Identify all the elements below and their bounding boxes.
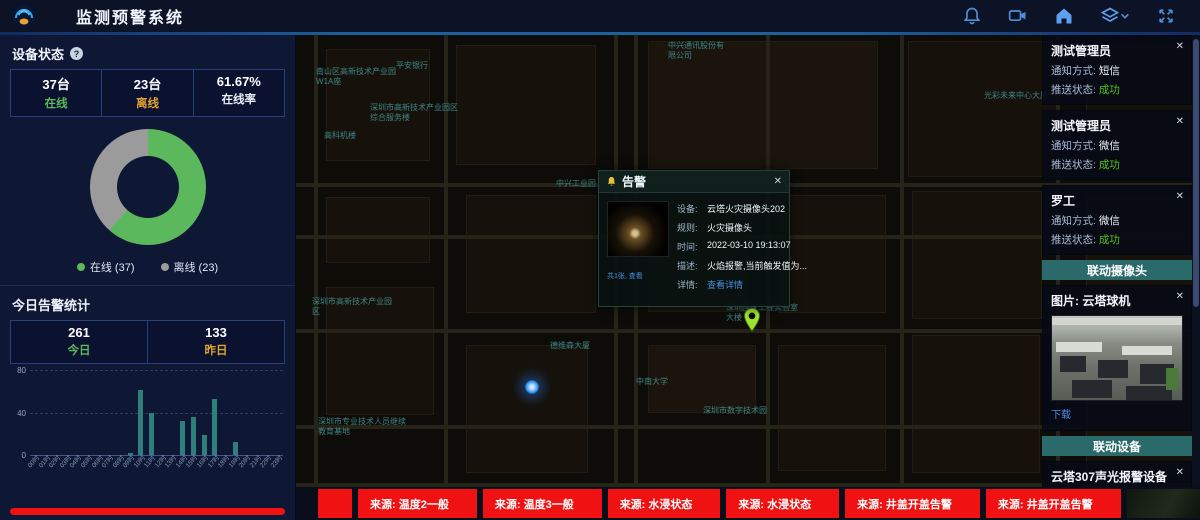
app-header: 监测预警系统 xyxy=(0,0,1200,32)
stat-cell: 37台在线 xyxy=(11,70,101,116)
card-title: 罗工 xyxy=(1051,192,1183,209)
alarm-source-chip[interactable] xyxy=(318,489,352,518)
donut-hole xyxy=(117,156,179,218)
x-axis-tick: 23时 xyxy=(273,459,284,485)
popup-row-value: 2022-03-10 19:13:07 xyxy=(707,240,791,253)
map-place-label: 深圳市高新技术产业园区综合服务楼 xyxy=(370,103,462,123)
alarm-bell-icon xyxy=(606,176,617,187)
bar-slot xyxy=(230,370,241,455)
bar xyxy=(212,399,217,455)
popup-row-label: 规则: xyxy=(677,221,707,234)
notification-card: 测试管理员✕通知方式: 微信推送状态: 成功 xyxy=(1042,110,1192,180)
today-alarm-stats: 261今日133昨日 xyxy=(10,320,285,364)
info-icon[interactable]: ? xyxy=(70,47,83,60)
chevron-down-icon xyxy=(1120,11,1130,21)
device-status-donut-chart xyxy=(90,129,206,245)
right-sidebar: 测试管理员✕通知方式: 短信推送状态: 成功测试管理员✕通知方式: 微信推送状态… xyxy=(1042,35,1192,520)
bar-slot xyxy=(146,370,157,455)
map-place-label: 深圳市数字技术园 xyxy=(703,406,793,416)
notification-card: 测试管理员✕通知方式: 短信推送状态: 成功 xyxy=(1042,35,1192,105)
bar xyxy=(149,413,154,456)
stat-label: 今日 xyxy=(11,342,147,358)
legend-item: 在线 (37) xyxy=(77,259,135,275)
stat-value: 23台 xyxy=(102,74,192,93)
camera-snapshot-image[interactable] xyxy=(1051,315,1183,401)
card-title: 云塔307声光报警设备 xyxy=(1051,468,1183,485)
photo-count-view-link[interactable]: 共1张, 查看 xyxy=(607,271,669,281)
camera-thumbnail-dark[interactable] xyxy=(1127,489,1200,518)
stat-label: 在线 xyxy=(11,95,101,111)
bar-slot xyxy=(209,370,220,455)
unhandled-progress-bar xyxy=(10,508,285,515)
alarm-source-chip[interactable]: 来源: 温度2一般 xyxy=(358,489,477,518)
popup-row: 描述:火焰报警,当前触发值为... xyxy=(677,259,807,272)
stat-value: 37台 xyxy=(11,74,101,93)
linked-devices-header[interactable]: 联动设备 xyxy=(1042,436,1192,456)
bar-slot xyxy=(262,370,273,455)
device-status-title: 设备状态 ? xyxy=(0,35,295,69)
bar xyxy=(180,421,185,455)
video-camera-icon[interactable] xyxy=(1008,6,1028,26)
map-place-label: 德维森大厦 xyxy=(550,341,610,351)
bar-slot xyxy=(199,370,210,455)
bell-icon[interactable] xyxy=(962,6,982,26)
popup-row-label: 详情: xyxy=(677,278,707,291)
card-title: 测试管理员 xyxy=(1051,42,1183,59)
bar-slot xyxy=(135,370,146,455)
stat-cell: 61.67%在线率 xyxy=(193,70,284,116)
stat-value: 61.67% xyxy=(194,74,284,89)
map-place-label: 中兴通讯股份有限公司 xyxy=(668,41,730,61)
close-icon[interactable]: ✕ xyxy=(1176,191,1184,202)
bar xyxy=(138,390,143,455)
bar-slot xyxy=(241,370,252,455)
y-axis-tick: 80 xyxy=(6,366,26,375)
page-title: 监测预警系统 xyxy=(76,4,184,28)
scrollbar-thumb[interactable] xyxy=(1193,39,1199,307)
today-alarms-title: 今日告警统计 xyxy=(0,286,295,320)
card-row: 通知方式: 微信 xyxy=(1051,138,1183,153)
popup-row-value: 火焰报警,当前触发值为... xyxy=(707,259,807,272)
bar-slot xyxy=(188,370,199,455)
bar-slot xyxy=(167,370,178,455)
bar-slot xyxy=(220,370,231,455)
bar-slot xyxy=(178,370,189,455)
popup-row-label: 设备: xyxy=(677,202,707,215)
stat-label: 在线率 xyxy=(194,91,284,107)
stat-cell: 23台离线 xyxy=(101,70,192,116)
device-status-stats: 37台在线23台离线61.67%在线率 xyxy=(10,69,285,117)
close-icon[interactable]: ✕ xyxy=(1176,467,1184,478)
fullscreen-icon[interactable] xyxy=(1156,6,1176,26)
y-axis-tick: 40 xyxy=(6,409,26,418)
stat-label: 昨日 xyxy=(148,342,284,358)
close-icon[interactable]: ✕ xyxy=(1176,41,1184,52)
alarm-source-chip[interactable]: 来源: 井盖开盖告警 xyxy=(986,489,1121,518)
y-axis-tick: 0 xyxy=(6,451,26,460)
alarm-source-chip[interactable]: 来源: 水浸状态 xyxy=(726,489,839,518)
popup-row-value: 火灾摄像头 xyxy=(707,221,752,234)
legend-label: 离线 (23) xyxy=(174,259,219,275)
legend-label: 在线 (37) xyxy=(90,259,135,275)
map-place-label: 中南大学 xyxy=(636,377,686,387)
bottom-alert-strip: 来源: 温度2一般来源: 温度3一般来源: 水浸状态来源: 水浸状态来源: 井盖… xyxy=(296,487,1200,520)
device-marker-blue-dot[interactable] xyxy=(525,380,539,394)
bar-slot xyxy=(251,370,262,455)
card-row: 通知方式: 短信 xyxy=(1051,63,1183,78)
app-logo-icon xyxy=(12,4,36,28)
view-details-link[interactable]: 查看详情 xyxy=(707,278,743,291)
linked-cameras-header[interactable]: 联动摄像头 xyxy=(1042,260,1192,280)
x-axis-labels: 00时01时02时03时04时05时06时07时08时09时10时11时12时1… xyxy=(30,459,283,485)
close-icon[interactable]: ✕ xyxy=(1176,291,1184,302)
card-row: 推送状态: 成功 xyxy=(1051,82,1183,97)
close-icon[interactable]: ✕ xyxy=(774,176,782,187)
bars-container xyxy=(30,370,283,455)
legend-item: 离线 (23) xyxy=(161,259,219,275)
donut-legend: 在线 (37)离线 (23) xyxy=(0,259,295,275)
bar-slot xyxy=(125,370,136,455)
alarm-popup-header: 告警 ✕ xyxy=(599,171,789,193)
alarm-source-chip[interactable]: 来源: 井盖开盖告警 xyxy=(845,489,980,518)
close-icon[interactable]: ✕ xyxy=(1176,116,1184,127)
bar-slot xyxy=(51,370,62,455)
alarm-snapshot-image[interactable] xyxy=(607,201,669,257)
bar-slot xyxy=(41,370,52,455)
alarm-popup-title: 告警 xyxy=(622,173,646,190)
alarm-popup: 告警 ✕ 共1张, 查看 设备:云塔火灾摄像头202规则:火灾摄像头时间:202… xyxy=(598,170,790,307)
notification-card: 罗工✕通知方式: 微信推送状态: 成功 xyxy=(1042,185,1192,255)
map-place-label: 南山区高新技术产业园W1A座 xyxy=(316,67,398,87)
stat-cell: 133昨日 xyxy=(147,321,284,363)
alarm-source-chip[interactable]: 来源: 温度3一般 xyxy=(483,489,602,518)
stat-value: 133 xyxy=(148,325,284,340)
bar-slot xyxy=(62,370,73,455)
stat-value: 261 xyxy=(11,325,147,340)
legend-dot xyxy=(77,263,85,271)
bar-slot xyxy=(157,370,168,455)
legend-dot xyxy=(161,263,169,271)
map-place-label: 深圳市专业技术人员继续教育基地 xyxy=(318,417,410,437)
popup-row: 设备:云塔火灾摄像头202 xyxy=(677,202,807,215)
popup-row-label: 描述: xyxy=(677,259,707,272)
bar-slot xyxy=(273,370,284,455)
card-title: 测试管理员 xyxy=(1051,117,1183,134)
map-place-label: 高科机楼 xyxy=(324,131,374,141)
alarm-marker-green-pin[interactable] xyxy=(742,307,762,333)
popup-row: 时间:2022-03-10 19:13:07 xyxy=(677,240,807,253)
bar-slot xyxy=(83,370,94,455)
bar xyxy=(191,417,196,455)
hourly-alarm-bar-chart: 8040000时01时02时03时04时05时06时07时08时09时10时11… xyxy=(30,370,283,488)
layers-icon[interactable] xyxy=(1100,6,1130,26)
bar-slot xyxy=(72,370,83,455)
popup-row: 规则:火灾摄像头 xyxy=(677,221,807,234)
card-row: 推送状态: 成功 xyxy=(1051,232,1183,247)
map-place-label: 深圳市高新技术产业园区 xyxy=(312,297,392,317)
stat-label: 离线 xyxy=(102,95,192,111)
card-row: 推送状态: 成功 xyxy=(1051,157,1183,172)
popup-row: 详情:查看详情 xyxy=(677,278,807,291)
popup-row-value: 云塔火灾摄像头202 xyxy=(707,202,785,215)
alarm-source-chip[interactable]: 来源: 水浸状态 xyxy=(608,489,721,518)
map-place-label: 平安银行 xyxy=(396,61,446,71)
bar-slot xyxy=(104,370,115,455)
bar-slot xyxy=(93,370,104,455)
bar-slot xyxy=(30,370,41,455)
bar-chart-plot: 80400 xyxy=(30,370,283,456)
download-link[interactable]: 下载 xyxy=(1051,406,1071,421)
camera-card-title: 图片: 云塔球机 xyxy=(1051,292,1183,309)
bar-slot xyxy=(114,370,125,455)
right-scrollbar[interactable] xyxy=(1192,35,1200,520)
linked-camera-card: 图片: 云塔球机 ✕ 下载 xyxy=(1042,285,1192,431)
left-sidebar: 设备状态 ? 37台在线23台离线61.67%在线率 在线 (37)离线 (23… xyxy=(0,35,296,520)
stat-cell: 261今日 xyxy=(11,321,147,363)
home-icon[interactable] xyxy=(1054,6,1074,26)
header-accent-line xyxy=(0,32,1200,35)
card-row: 通知方式: 微信 xyxy=(1051,213,1183,228)
popup-row-label: 时间: xyxy=(677,240,707,253)
